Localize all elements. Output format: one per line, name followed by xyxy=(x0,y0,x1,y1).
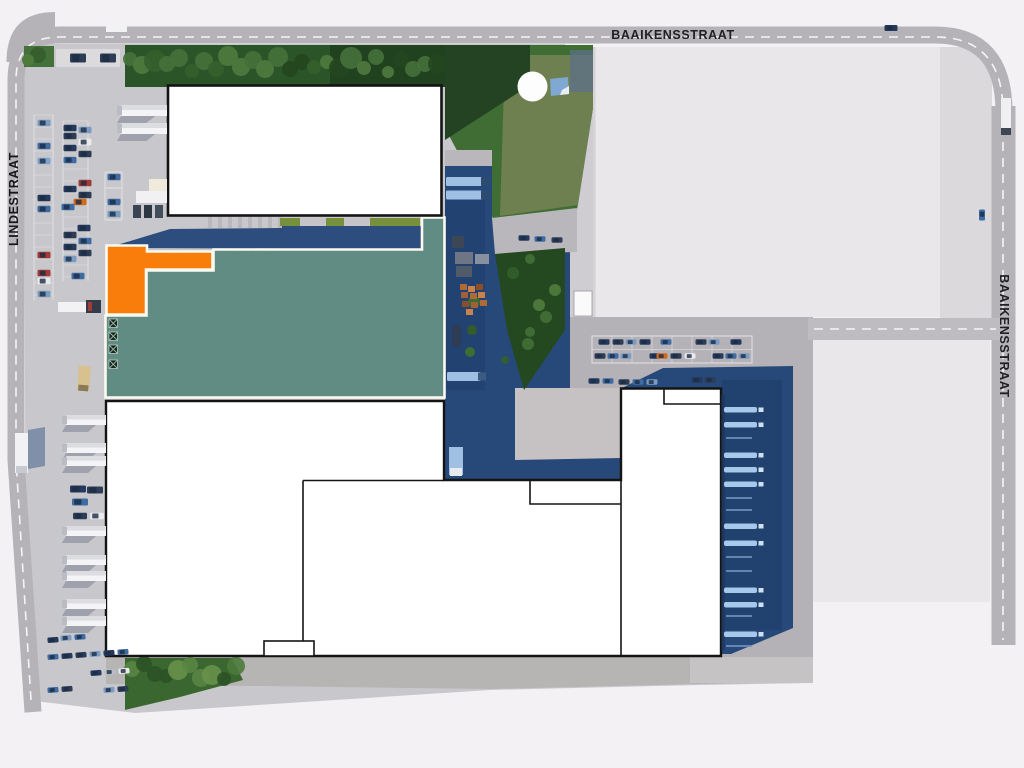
svg-text:BAAIKENSSTRAAT: BAAIKENSSTRAAT xyxy=(997,274,1011,397)
svg-text:BAAIKENSSTRAAT: BAAIKENSSTRAAT xyxy=(611,28,734,42)
svg-text:LINDESTRAAT: LINDESTRAAT xyxy=(7,152,21,246)
